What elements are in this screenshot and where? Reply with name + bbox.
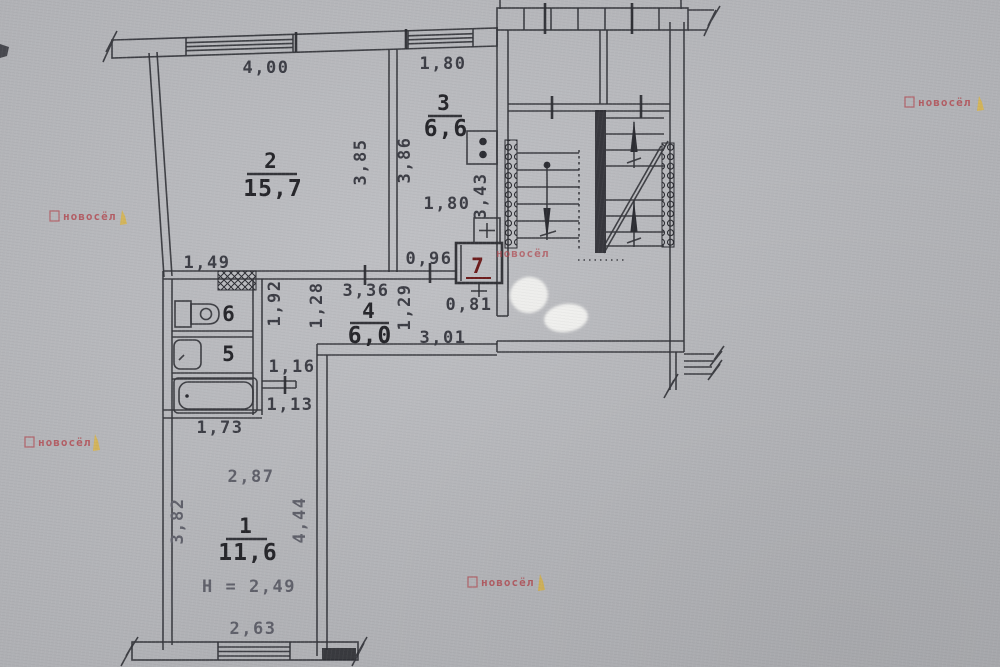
dim-0-81: 0,81 <box>446 295 493 315</box>
correction-fluid-blobs <box>506 273 590 335</box>
gnome-icon <box>977 96 984 111</box>
hatched-wall-segment <box>218 271 256 290</box>
stair-flight-left <box>505 140 579 250</box>
stair-direction-arrow-down <box>540 162 556 240</box>
room5-number: 5 <box>222 342 236 366</box>
stair-direction-arrow-up <box>627 120 641 168</box>
room3-number: 3 <box>437 91 451 115</box>
bottom-exterior-wall <box>121 637 367 666</box>
dim-2-63: 2,63 <box>230 619 277 639</box>
dim-1-28: 1,28 <box>307 282 327 329</box>
floorplan-drawing: 2 15,7 3 6,6 4 6,0 6 5 7 1 11,6 Н = 2,49… <box>0 0 1000 667</box>
dim-1-13: 1,13 <box>267 395 314 415</box>
watermark-text: новосёл <box>481 576 534 589</box>
watermark-top-right: новосёл <box>905 96 984 111</box>
dim-3-86: 3,86 <box>395 137 415 184</box>
watermark-room7: новосёл <box>496 247 549 260</box>
washbasin-icon <box>174 340 201 369</box>
toilet-icon <box>175 301 219 327</box>
room4-area: 6,0 <box>348 323 393 349</box>
wall-break-icon <box>710 346 724 366</box>
stair-flight-right <box>604 118 674 253</box>
stair-slope-line <box>604 141 668 253</box>
wall-break-icon <box>708 360 722 380</box>
wall-break-icon <box>121 637 138 666</box>
gnome-icon <box>120 210 127 225</box>
room2-area: 15,7 <box>243 176 302 202</box>
dim-1-92: 1,92 <box>265 280 285 327</box>
dim-3-43: 3,43 <box>471 173 491 220</box>
watermark-text: новосёл <box>918 96 971 109</box>
room2-number: 2 <box>264 149 278 173</box>
watermark-left: новосёл <box>50 210 127 225</box>
room1-area: 11,6 <box>218 540 277 566</box>
window-kitchen <box>408 29 473 49</box>
gnome-icon <box>93 434 100 451</box>
floorplan-scan: 2 15,7 3 6,6 4 6,0 6 5 7 1 11,6 Н = 2,49… <box>0 0 1000 667</box>
room6-number: 6 <box>222 302 236 326</box>
dim-1-49: 1,49 <box>184 253 231 273</box>
dim-3-01: 3,01 <box>420 328 467 348</box>
room4-number: 4 <box>362 299 376 323</box>
kitchen-stove-icon <box>467 131 497 164</box>
stairwell <box>497 0 724 398</box>
dim-1-80-mid: 1,80 <box>424 194 471 214</box>
stair-center-wall <box>595 110 606 253</box>
dim-3-36: 3,36 <box>343 281 390 301</box>
watermark-text: новосёл <box>38 436 91 449</box>
watermark-text: новосёл <box>496 247 549 260</box>
dim-1-73: 1,73 <box>197 418 244 438</box>
dim-3-85: 3,85 <box>351 139 371 186</box>
dim-1-29: 1,29 <box>395 284 415 331</box>
watermark-bottom-middle: новосёл <box>468 574 545 591</box>
scan-artifact <box>0 44 9 58</box>
dim-4-44: 4,44 <box>290 497 310 544</box>
watermark-bottom-left: новосёл <box>25 434 100 451</box>
dim-2-87: 2,87 <box>228 467 275 487</box>
building-entrance-stub <box>664 346 724 398</box>
window-room1 <box>218 642 290 660</box>
kitchen-sink-icon <box>474 218 500 243</box>
dim-0-96: 0,96 <box>406 249 453 269</box>
stair-direction-arrow-up <box>627 200 641 247</box>
dim-1-80-top: 1,80 <box>420 54 467 74</box>
dim-1-16: 1,16 <box>269 357 316 377</box>
gnome-icon <box>538 574 545 591</box>
dim-3-82: 3,82 <box>168 498 188 545</box>
dim-4-00: 4,00 <box>243 58 290 78</box>
room3-area: 6,6 <box>424 116 469 142</box>
watermark-text: новосёл <box>63 210 116 223</box>
room1-height-note: Н = 2,49 <box>202 577 296 597</box>
room7-number: 7 <box>471 254 485 278</box>
room1-number: 1 <box>239 514 253 538</box>
stair-rail-hatch <box>505 140 517 248</box>
bathtub-icon <box>174 378 257 413</box>
